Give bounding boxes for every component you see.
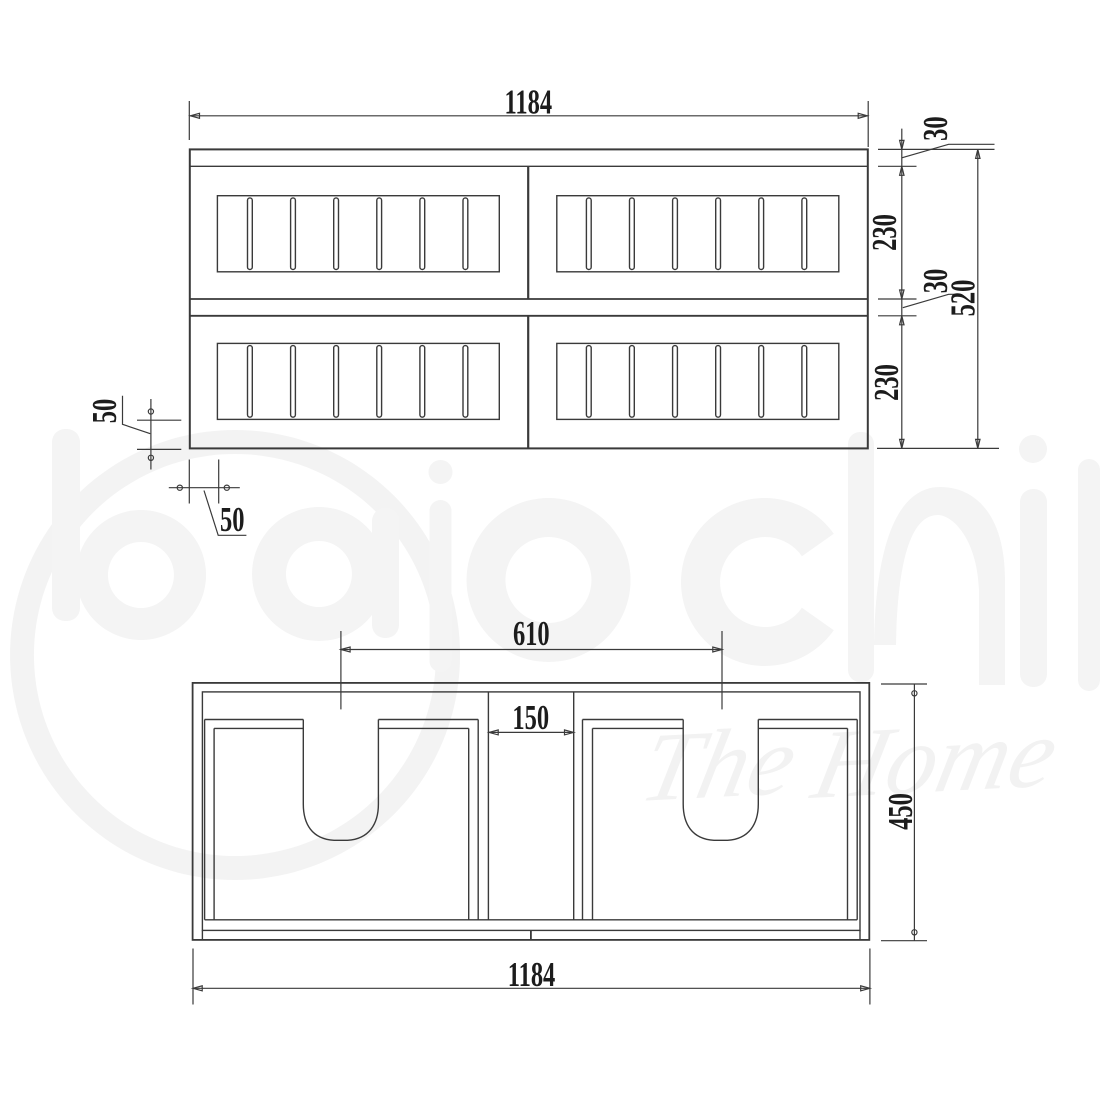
svg-text:150: 150: [512, 698, 549, 737]
svg-text:The: The: [632, 705, 806, 823]
svg-text:30: 30: [916, 116, 955, 140]
svg-text:Home: Home: [802, 697, 1067, 819]
svg-text:1184: 1184: [504, 82, 552, 121]
svg-text:50: 50: [220, 500, 244, 539]
svg-text:610: 610: [513, 614, 550, 653]
svg-text:50: 50: [85, 399, 124, 423]
svg-text:520: 520: [943, 280, 982, 317]
svg-text:450: 450: [881, 793, 920, 830]
svg-text:230: 230: [865, 214, 904, 251]
svg-text:1184: 1184: [508, 955, 556, 994]
svg-text:230: 230: [867, 364, 906, 401]
